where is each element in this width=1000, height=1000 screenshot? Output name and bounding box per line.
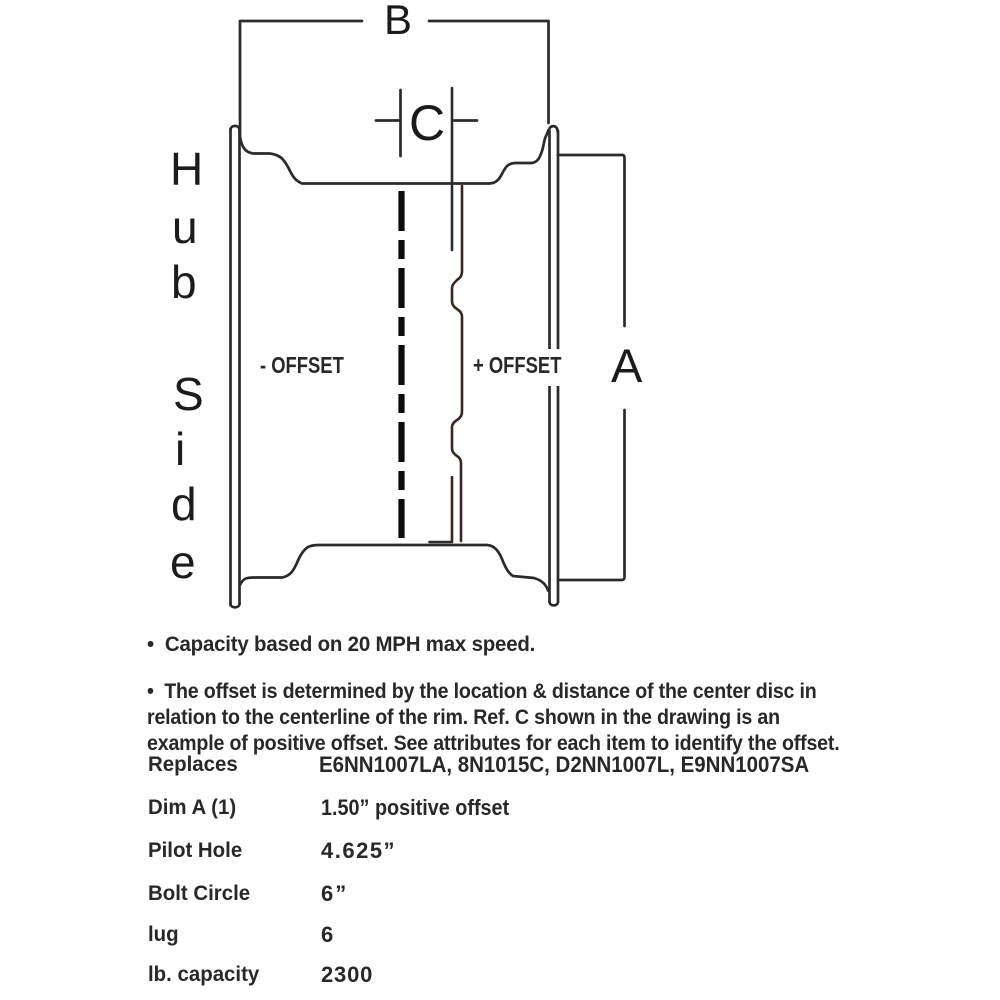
svg-text:S: S [173, 368, 204, 420]
svg-text:b: b [171, 256, 197, 308]
svg-text:i: i [175, 423, 185, 475]
svg-text:e: e [170, 536, 196, 588]
svg-text:u: u [172, 201, 198, 253]
svg-text:A: A [611, 339, 643, 392]
svg-text:H: H [170, 143, 203, 195]
svg-text:C: C [409, 95, 445, 151]
svg-text:B: B [384, 0, 412, 43]
svg-text:d: d [171, 478, 197, 530]
